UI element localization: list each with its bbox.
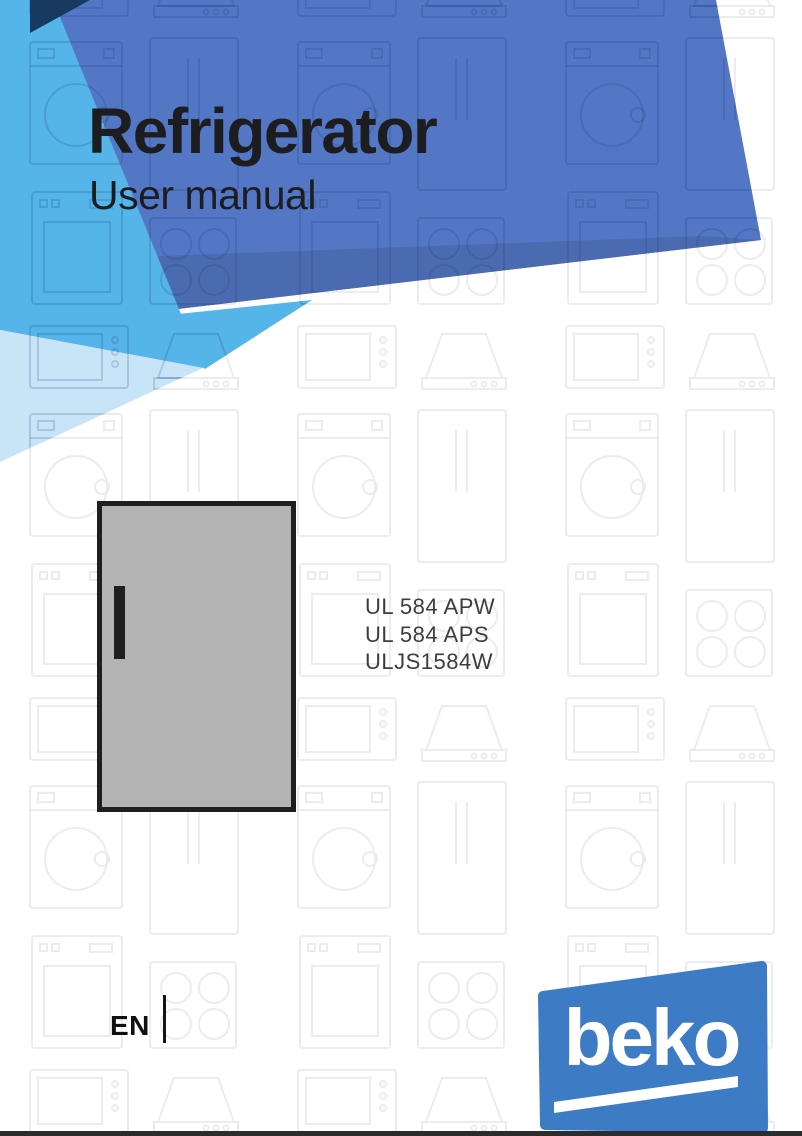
refrigerator-door-handle: [114, 586, 125, 659]
refrigerator-illustration: [97, 501, 296, 812]
model-number-list: UL 584 APW UL 584 APS ULJS1584W: [365, 593, 495, 676]
model-number: UL 584 APW: [365, 593, 495, 621]
model-number: ULJS1584W: [365, 648, 495, 676]
manual-cover-page: Refrigerator User manual UL 584 APW UL 5…: [0, 0, 802, 1136]
language-divider: [163, 995, 166, 1043]
page-bottom-border: [0, 1131, 802, 1136]
title-block: Refrigerator User manual: [88, 96, 436, 219]
language-block: EN: [110, 995, 166, 1043]
model-number: UL 584 APS: [365, 621, 495, 649]
page-title: Refrigerator: [88, 96, 436, 166]
beko-logo-text: beko: [564, 993, 739, 1082]
page-subtitle: User manual: [89, 172, 436, 219]
beko-logo: beko: [537, 958, 773, 1136]
language-label: EN: [110, 996, 150, 1042]
